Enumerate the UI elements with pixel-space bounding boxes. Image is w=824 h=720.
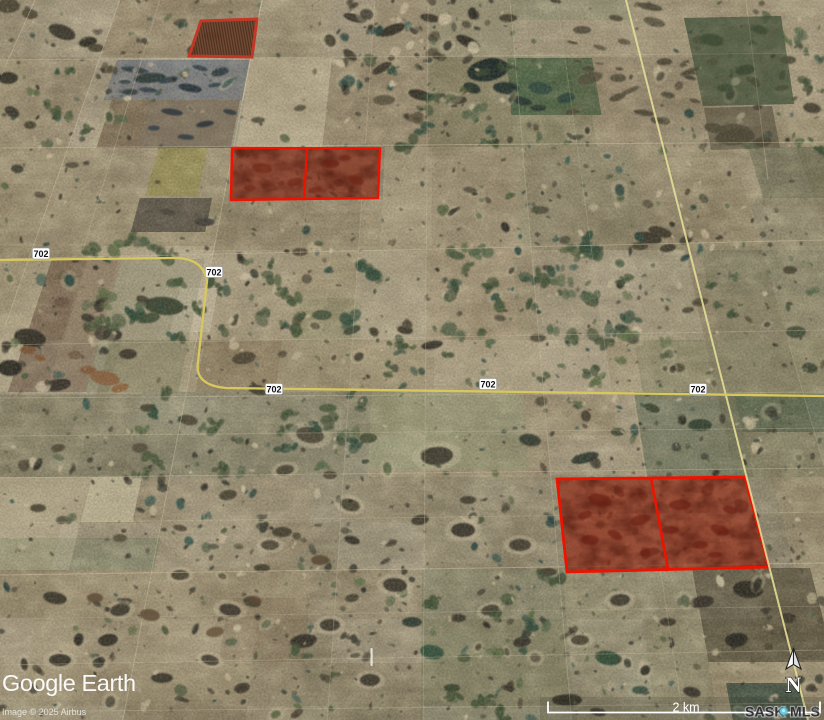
svg-text:702: 702 xyxy=(480,379,495,389)
svg-text:N: N xyxy=(786,672,802,697)
svg-text:®: ® xyxy=(813,706,819,714)
svg-text:702: 702 xyxy=(206,267,221,277)
svg-text:Google Earth: Google Earth xyxy=(2,670,136,696)
svg-text:702: 702 xyxy=(33,249,48,259)
svg-text:702: 702 xyxy=(266,384,281,394)
svg-text:Image © 2025 Airbus: Image © 2025 Airbus xyxy=(2,707,87,717)
svg-text:702: 702 xyxy=(690,384,705,394)
svg-text:2 km: 2 km xyxy=(672,701,699,715)
